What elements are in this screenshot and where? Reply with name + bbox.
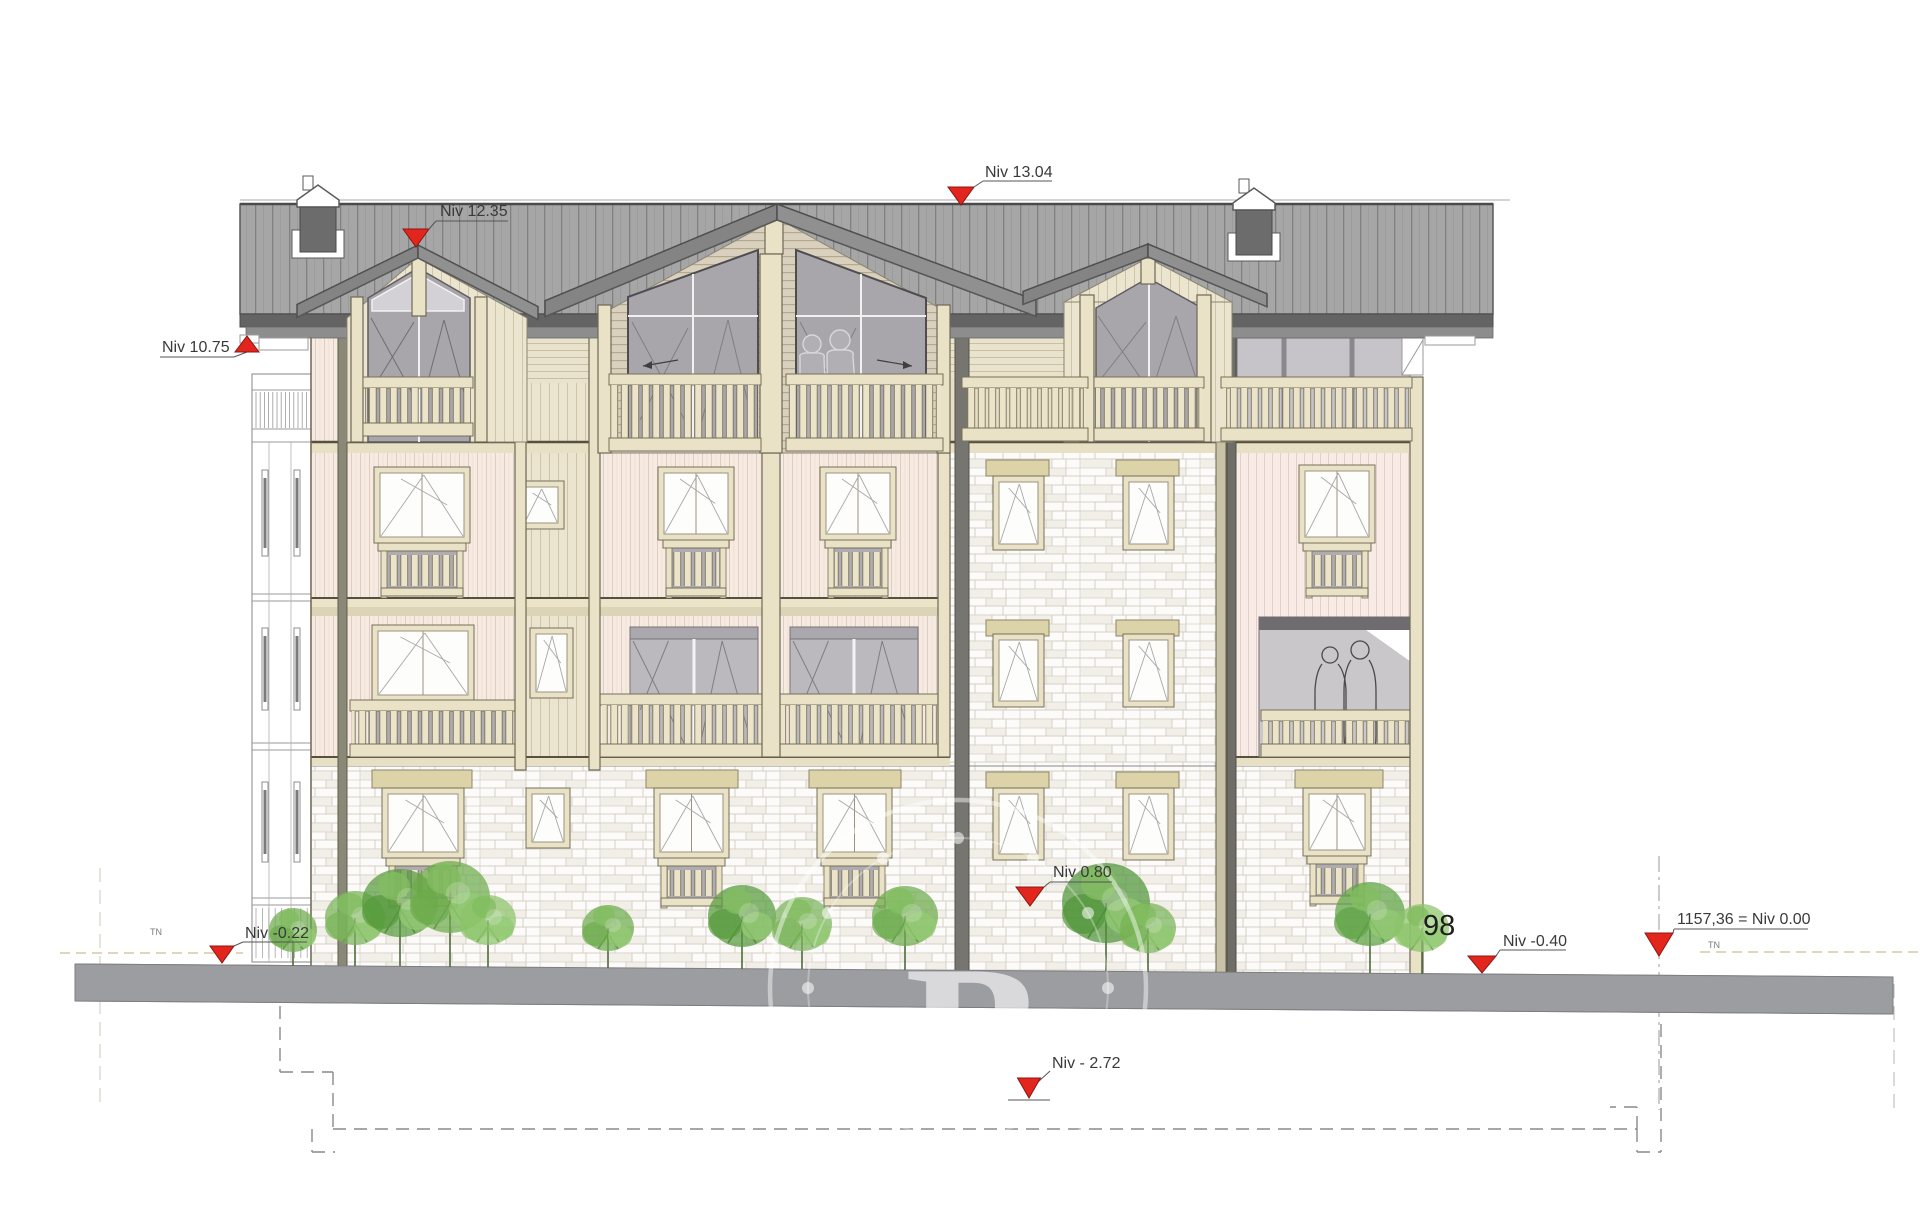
svg-text:Niv 10.75: Niv 10.75: [162, 339, 230, 356]
svg-text:Niv -0.22: Niv -0.22: [245, 925, 309, 942]
svg-text:Niv 0.80: Niv 0.80: [1053, 864, 1112, 881]
svg-text:1157,36 = Niv 0.00: 1157,36 = Niv 0.00: [1677, 911, 1811, 928]
svg-text:Niv 12.35: Niv 12.35: [440, 203, 508, 220]
svg-text:Niv - 2.72: Niv - 2.72: [1052, 1055, 1121, 1072]
svg-text:98: 98: [1423, 910, 1455, 942]
svg-text:TN: TN: [1708, 940, 1720, 950]
svg-text:Niv -0.40: Niv -0.40: [1503, 933, 1567, 950]
svg-text:TN: TN: [150, 927, 162, 937]
svg-text:B: B: [905, 923, 1045, 1155]
svg-text:Niv 13.04: Niv 13.04: [985, 164, 1053, 181]
